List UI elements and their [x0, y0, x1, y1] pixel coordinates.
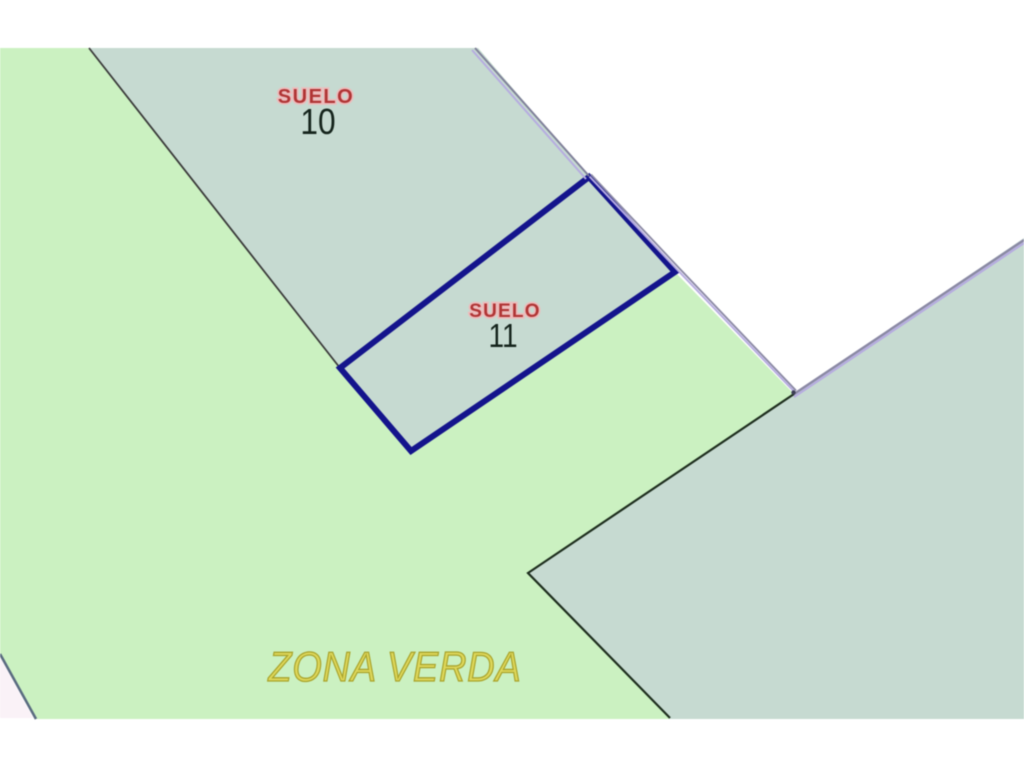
svg-text:10: 10: [300, 102, 335, 142]
svg-text:ZONA VERDA: ZONA VERDA: [267, 644, 521, 690]
svg-text:11: 11: [488, 318, 517, 355]
